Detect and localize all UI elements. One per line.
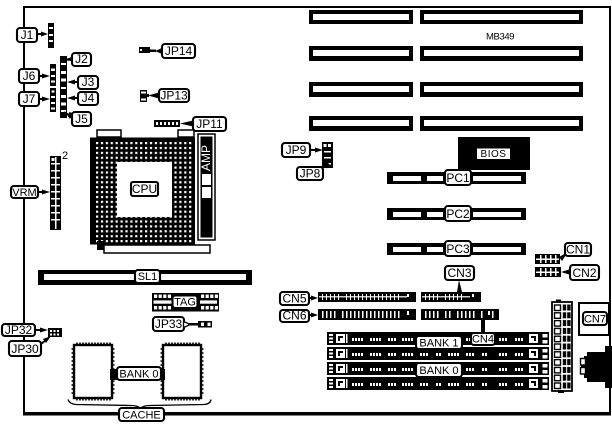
svg-text:J2: J2 bbox=[75, 52, 88, 66]
svg-text:J6: J6 bbox=[23, 69, 36, 83]
svg-text:CN4: CN4 bbox=[472, 334, 494, 346]
svg-text:JP14: JP14 bbox=[165, 44, 193, 58]
svg-text:BANK 0: BANK 0 bbox=[119, 369, 158, 381]
svg-text:BANK 1: BANK 1 bbox=[419, 338, 458, 350]
svg-text:JP11: JP11 bbox=[196, 117, 223, 131]
svg-text:CN2: CN2 bbox=[572, 266, 596, 280]
svg-text:BIOS: BIOS bbox=[481, 149, 507, 160]
svg-text:PC3: PC3 bbox=[446, 242, 470, 256]
svg-text:CN5: CN5 bbox=[282, 292, 306, 306]
svg-text:TAG: TAG bbox=[174, 296, 196, 308]
svg-text:SL1: SL1 bbox=[138, 271, 158, 283]
svg-text:AMP: AMP bbox=[199, 145, 213, 171]
svg-text:CPU: CPU bbox=[132, 182, 157, 196]
svg-text:CACHE: CACHE bbox=[122, 410, 161, 422]
svg-text:J7: J7 bbox=[23, 92, 36, 106]
svg-text:PC2: PC2 bbox=[446, 207, 470, 221]
svg-text:JP30: JP30 bbox=[11, 342, 39, 356]
svg-text:J1: J1 bbox=[21, 28, 34, 42]
svg-text:JP13: JP13 bbox=[160, 89, 188, 103]
svg-text:CN3: CN3 bbox=[447, 266, 471, 280]
svg-text:J5: J5 bbox=[75, 112, 88, 126]
svg-text:BANK 0: BANK 0 bbox=[419, 365, 458, 377]
svg-text:CN1: CN1 bbox=[566, 243, 590, 257]
svg-text:JP8: JP8 bbox=[300, 167, 321, 181]
svg-text:PC1: PC1 bbox=[446, 171, 470, 185]
svg-text:JP32: JP32 bbox=[5, 323, 33, 337]
svg-text:CN6: CN6 bbox=[282, 309, 306, 323]
svg-text:CN7: CN7 bbox=[584, 314, 606, 326]
svg-text:J4: J4 bbox=[82, 91, 95, 105]
svg-text:JP33: JP33 bbox=[155, 317, 183, 331]
svg-text:VRM: VRM bbox=[12, 187, 36, 199]
svg-text:2: 2 bbox=[62, 150, 68, 162]
svg-text:MB349: MB349 bbox=[486, 32, 514, 43]
svg-text:J3: J3 bbox=[82, 75, 95, 89]
svg-text:JP9: JP9 bbox=[286, 143, 307, 157]
